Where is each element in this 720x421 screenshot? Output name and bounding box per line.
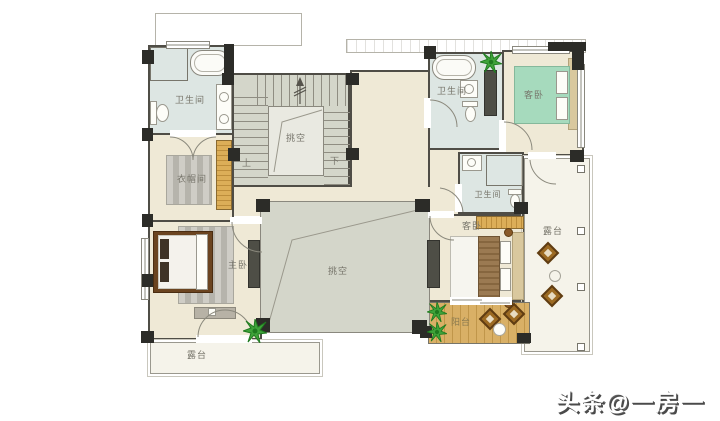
plant-icon [427, 322, 447, 342]
column [517, 333, 531, 343]
label-cloakroom: 衣帽间 [164, 174, 220, 184]
plant-icon [243, 319, 267, 343]
plant-icon [480, 51, 502, 73]
label-terrace-bottom-left: 露台 [180, 350, 214, 360]
column [224, 44, 234, 76]
column [142, 50, 154, 64]
label-stairs-down: 下 [328, 156, 342, 166]
column [141, 331, 154, 343]
door-arcs [170, 100, 556, 337]
column [570, 150, 584, 162]
label-bath-top-right: 卫生间 [428, 86, 476, 96]
label-master-bedroom: 主卧 [222, 260, 254, 270]
label-central-void: 挑空 [314, 266, 362, 276]
column [142, 214, 153, 227]
column [256, 199, 270, 212]
column [424, 46, 436, 59]
label-stairwell-void: 挑空 [272, 133, 320, 143]
label-guest-bedroom-top: 客卧 [518, 90, 550, 100]
column [346, 73, 359, 85]
label-terrace-right: 露台 [538, 226, 568, 236]
label-guest-bedroom-bottom: 客卧 [456, 221, 488, 231]
column [142, 128, 153, 141]
stair-direction-arrow [294, 77, 306, 104]
watermark: 头条@一房一万 [556, 383, 720, 421]
column [572, 46, 584, 70]
label-bath-top-left: 卫生间 [166, 95, 214, 105]
floor-plan: 卫生间 衣帽间 主卧 露台 挑空 上 下 挑空 卫生间 客卧 卫生间 客卧 露台… [0, 0, 720, 421]
label-stairs-up: 上 [240, 158, 254, 168]
plant-icon [427, 302, 447, 322]
column [228, 148, 240, 161]
label-bath-mid-right: 卫生间 [466, 190, 510, 200]
column [346, 148, 359, 160]
column [514, 202, 528, 214]
column [415, 199, 430, 212]
plan-linework [0, 0, 720, 421]
label-balcony-deck: 阳台 [446, 317, 476, 327]
column [222, 73, 234, 85]
column [142, 274, 153, 287]
